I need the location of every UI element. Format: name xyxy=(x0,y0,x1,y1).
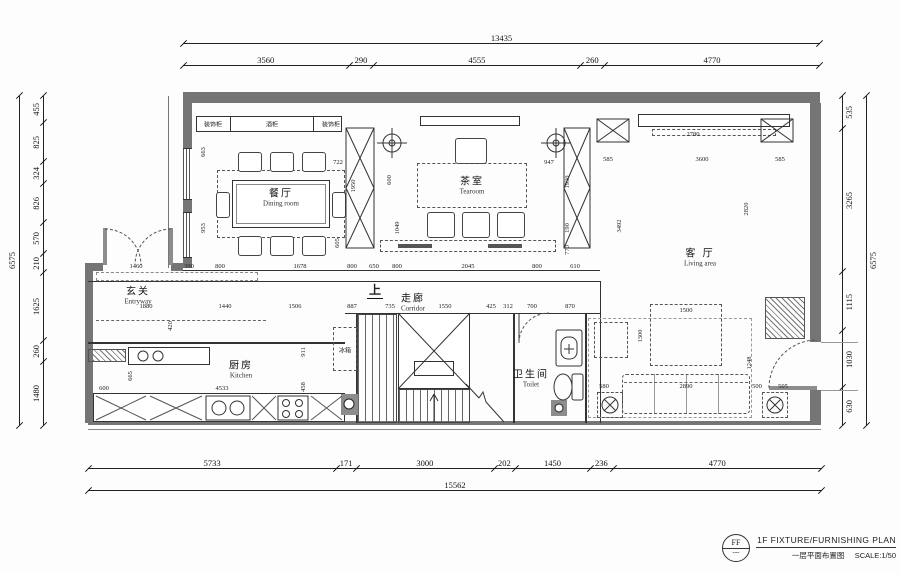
dim-chain-right: 535326511151030630 xyxy=(842,96,856,425)
dimension-value: 947 xyxy=(544,160,554,167)
dimension-value: 665 xyxy=(128,371,135,381)
dimension-value: 1930 xyxy=(565,176,572,189)
dimension-value: 600 xyxy=(387,175,394,185)
stair-landing-post xyxy=(341,394,358,415)
dimension-value: 2045 xyxy=(462,264,475,271)
dining-cabinet-divider-1 xyxy=(230,116,231,132)
wall-bottom-line xyxy=(88,429,821,430)
hall-cabinet xyxy=(765,297,805,339)
toilet-door-arc xyxy=(519,313,549,343)
dim-chain-right-total: 6575 xyxy=(866,96,880,425)
wall-left-upper-2 xyxy=(183,200,192,212)
dimension-value: 202 xyxy=(498,459,511,468)
stairs-flight-bottom xyxy=(398,389,470,423)
dimension-value: 1500 xyxy=(680,308,693,315)
entry-mat xyxy=(96,272,258,281)
sofa xyxy=(622,374,750,414)
room-name-en: Living area xyxy=(684,260,716,268)
dim-chain-top: 356029045552604770 xyxy=(183,52,820,66)
tea-bench-bar xyxy=(488,244,522,248)
threshold-line-lower xyxy=(821,390,858,391)
dimension-value: 425 xyxy=(486,304,496,311)
dimension-value: 3000 xyxy=(416,459,433,468)
dimension-value: 800 xyxy=(392,264,402,271)
dimension-value: 6575 xyxy=(869,252,878,269)
dimension-value: 3560 xyxy=(257,56,274,65)
dining-chair xyxy=(238,236,262,256)
dimension-value: 236 xyxy=(595,459,608,468)
room-name-cn: 客 厅 xyxy=(684,245,716,260)
dimension-value: 1248 xyxy=(747,357,754,370)
dimension-value: 630 xyxy=(845,400,854,413)
dimension-value: 600 xyxy=(99,386,109,393)
window-left-1 xyxy=(183,148,192,200)
floor-plan: 13435 356029045552604770 573317130002021… xyxy=(0,0,900,574)
dimension-value: 420 xyxy=(168,321,175,331)
dining-chair xyxy=(238,152,262,172)
dimension-value: 1115 xyxy=(845,294,854,310)
tea-chair xyxy=(497,212,525,238)
main-door-arc xyxy=(769,340,817,388)
drawing-title-cn-row: 一层平面布置图 SCALE:1/50 xyxy=(756,548,896,561)
dimension-value: 505 xyxy=(778,384,788,391)
title-text: 1F FIXTURE/FURNISHING PLAN 一层平面布置图 SCALE… xyxy=(756,535,896,561)
dimension-value: 1480 xyxy=(32,385,41,402)
dimension-value: 312 xyxy=(503,304,513,311)
room-name-en: Tearoom xyxy=(460,188,485,196)
room-name-cn: 走廊 xyxy=(401,290,425,305)
dimension-value: 610 xyxy=(570,264,580,271)
room-label-living: 客 厅Living area xyxy=(684,245,716,268)
annotation-up: 上 xyxy=(367,281,383,299)
dim-chain-left-total: 6575 xyxy=(6,96,20,425)
tea-chair xyxy=(462,212,490,238)
dimension-value: 1300 xyxy=(638,330,645,343)
dimension-value: 15562 xyxy=(444,481,465,490)
dimension-value: 458 xyxy=(301,382,308,392)
elevator-door xyxy=(414,361,454,376)
dimension-value: 585 xyxy=(775,157,785,164)
drawing-title-cn: 一层平面布置图 xyxy=(792,551,845,560)
dining-chair-end xyxy=(216,192,230,218)
tea-chair-top xyxy=(455,138,487,164)
entry-sink-counter xyxy=(128,347,210,365)
washbasin-icon xyxy=(556,330,582,366)
dimension-value: 700 xyxy=(527,304,537,311)
dimension-value: 1950 xyxy=(351,180,358,193)
wall-top xyxy=(183,92,820,103)
dimension-value: 210 xyxy=(32,257,41,270)
room-label-corridor: 走廊Corridor xyxy=(401,290,425,313)
side-table-left xyxy=(597,392,623,418)
annotation-tiny: 酒柜 xyxy=(266,120,278,129)
dimension-value: 3265 xyxy=(845,192,854,209)
dimension-value: 4770 xyxy=(703,56,720,65)
dimension-value: 953 xyxy=(201,223,208,233)
entry-door-leaf-left xyxy=(103,228,107,265)
dimension-value: 324 xyxy=(32,167,41,180)
dimension-value: 5733 xyxy=(204,459,221,468)
tea-chair xyxy=(427,212,455,238)
tv-console xyxy=(638,114,790,127)
dimension-value: 2780 xyxy=(687,132,700,139)
room-name-cn: 餐厅 xyxy=(263,185,299,200)
dimension-value: 455 xyxy=(32,103,41,116)
room-name-en: Corridor xyxy=(401,305,425,313)
stairs-flight-left xyxy=(357,314,397,423)
entry-double-door-arcs xyxy=(105,229,171,265)
dimension-value: 390 xyxy=(184,264,194,271)
room-label-dining: 餐厅Dining room xyxy=(263,185,299,208)
dining-chair xyxy=(302,152,326,172)
dimension-value: 1506 xyxy=(289,304,302,311)
floor-plan-sheet: 13435 356029045552604770 573317130002021… xyxy=(0,0,900,574)
wall-left-upper-1 xyxy=(183,103,192,148)
room-label-toilet: 卫生间Toilet xyxy=(513,366,549,389)
tearoom-shelf xyxy=(420,116,520,126)
dimension-value: 735 xyxy=(385,304,395,311)
dim-chain-top-total: 13435 xyxy=(183,30,820,44)
room-name-cn: 厨房 xyxy=(229,357,253,372)
room-label-kitchen: 厨房Kitchen xyxy=(229,357,253,380)
dimension-value: 1049 xyxy=(395,222,402,235)
dining-cabinet-divider-2 xyxy=(313,116,314,132)
tea-bench-bar xyxy=(398,244,432,248)
dimension-value: 800 xyxy=(347,264,357,271)
dimension-value: 260 xyxy=(586,56,599,65)
partition-corridor-top xyxy=(88,281,600,282)
room-name-en: Entryway xyxy=(124,298,151,306)
dimension-value: 3492 xyxy=(617,220,624,233)
partition-entry-bottom xyxy=(96,320,266,321)
room-name-cn: 卫生间 xyxy=(513,366,549,381)
dimension-value: 650 xyxy=(369,264,379,271)
dimension-value: 663 xyxy=(201,147,208,157)
side-table-right xyxy=(762,392,788,418)
dining-chair xyxy=(270,152,294,172)
dimension-value: 570 xyxy=(32,232,41,245)
shoe-cabinet xyxy=(88,349,126,362)
dimension-value: 825 xyxy=(32,136,41,149)
annotation-tiny: 装饰柜 xyxy=(204,120,222,129)
toilet-floor-drain-box xyxy=(551,400,567,416)
room-name-en: Toilet xyxy=(513,381,549,389)
dim-chain-left: 45582532482657021016252601480 xyxy=(30,96,44,425)
dimension-value: 870 xyxy=(565,304,575,311)
partition-kitchen-top xyxy=(88,342,345,344)
entry-door-leaf-right xyxy=(169,228,173,265)
dimension-value: 800 xyxy=(215,264,225,271)
dimension-value: 500 xyxy=(752,384,762,391)
room-label-tearoom: 茶室Tearoom xyxy=(460,173,485,196)
threshold-line-upper xyxy=(821,342,858,343)
wall-right-upper xyxy=(810,103,821,342)
dimension-value: 2820 xyxy=(744,203,751,216)
dining-chair xyxy=(270,236,294,256)
dimension-value: 605 xyxy=(335,238,342,248)
dining-chair xyxy=(302,236,326,256)
dim-chain-bottom-total: 15562 xyxy=(88,477,822,491)
dimension-value: 260 xyxy=(32,345,41,358)
room-name-cn: 玄关 xyxy=(124,283,151,298)
dimension-value: 13435 xyxy=(491,34,512,43)
entry-wall-stub-left xyxy=(85,263,103,271)
dimension-value: 1450 xyxy=(544,459,561,468)
room-name-cn: 茶室 xyxy=(460,173,485,188)
dimension-value: 2890 xyxy=(680,384,693,391)
wall-right-lower xyxy=(810,390,821,423)
dimension-value: 1625 xyxy=(32,298,41,315)
dining-chair-end xyxy=(332,192,346,218)
room-name-en: Kitchen xyxy=(229,372,253,380)
dimension-value: 6575 xyxy=(8,252,17,269)
room-name-en: Dining room xyxy=(263,200,299,208)
dimension-value: 1440 xyxy=(219,304,232,311)
dimension-value: 535 xyxy=(845,106,854,119)
wall-left-lower xyxy=(85,265,93,423)
dimension-value: 4770 xyxy=(709,459,726,468)
dimension-value: 887 xyxy=(347,304,357,311)
window-left-2 xyxy=(183,212,192,258)
tv-set xyxy=(652,129,776,136)
armchair xyxy=(594,322,628,358)
dimension-value: 585 xyxy=(603,157,613,164)
annotation-tiny: 冰箱 xyxy=(339,346,351,355)
elevator-shaft xyxy=(398,313,470,389)
dimension-value: 171 xyxy=(340,459,353,468)
main-door-leaf xyxy=(769,386,817,390)
dimension-value: 911 xyxy=(301,347,308,357)
toilet-icon xyxy=(554,374,583,400)
dimension-value: 1460 xyxy=(130,264,143,271)
dimension-value: 4533 xyxy=(216,386,229,393)
room-label-entryway: 玄关Entryway xyxy=(124,283,151,306)
title-block: FF --- 1F FIXTURE/FURNISHING PLAN 一层平面布置… xyxy=(722,528,896,568)
dimension-value: 1550 xyxy=(439,304,452,311)
dimension-value: 4555 xyxy=(468,56,485,65)
stamp-subtext: --- xyxy=(733,549,740,557)
dimension-value: 770 xyxy=(565,245,572,255)
dimension-value: 1678 xyxy=(294,264,307,271)
dimension-value: 3600 xyxy=(696,157,709,164)
kitchen-counter xyxy=(93,393,345,422)
dimension-value: 190 xyxy=(565,223,572,233)
dim-chain-bottom: 5733171300020214502364770 xyxy=(88,455,822,469)
drawing-title-en: 1F FIXTURE/FURNISHING PLAN xyxy=(756,535,896,548)
dimension-value: 722 xyxy=(333,160,343,167)
dimension-value: 800 xyxy=(532,264,542,271)
partition-toilet-right xyxy=(585,313,587,423)
drawing-scale: SCALE:1/50 xyxy=(855,551,896,560)
dimension-value: 826 xyxy=(32,197,41,210)
stamp-circle: FF --- xyxy=(722,534,750,562)
dimension-value: 580 xyxy=(599,384,609,391)
dimension-value: 1030 xyxy=(845,351,854,368)
dimension-value: 290 xyxy=(355,56,368,65)
annotation-tiny: 装饰柜 xyxy=(322,120,340,129)
